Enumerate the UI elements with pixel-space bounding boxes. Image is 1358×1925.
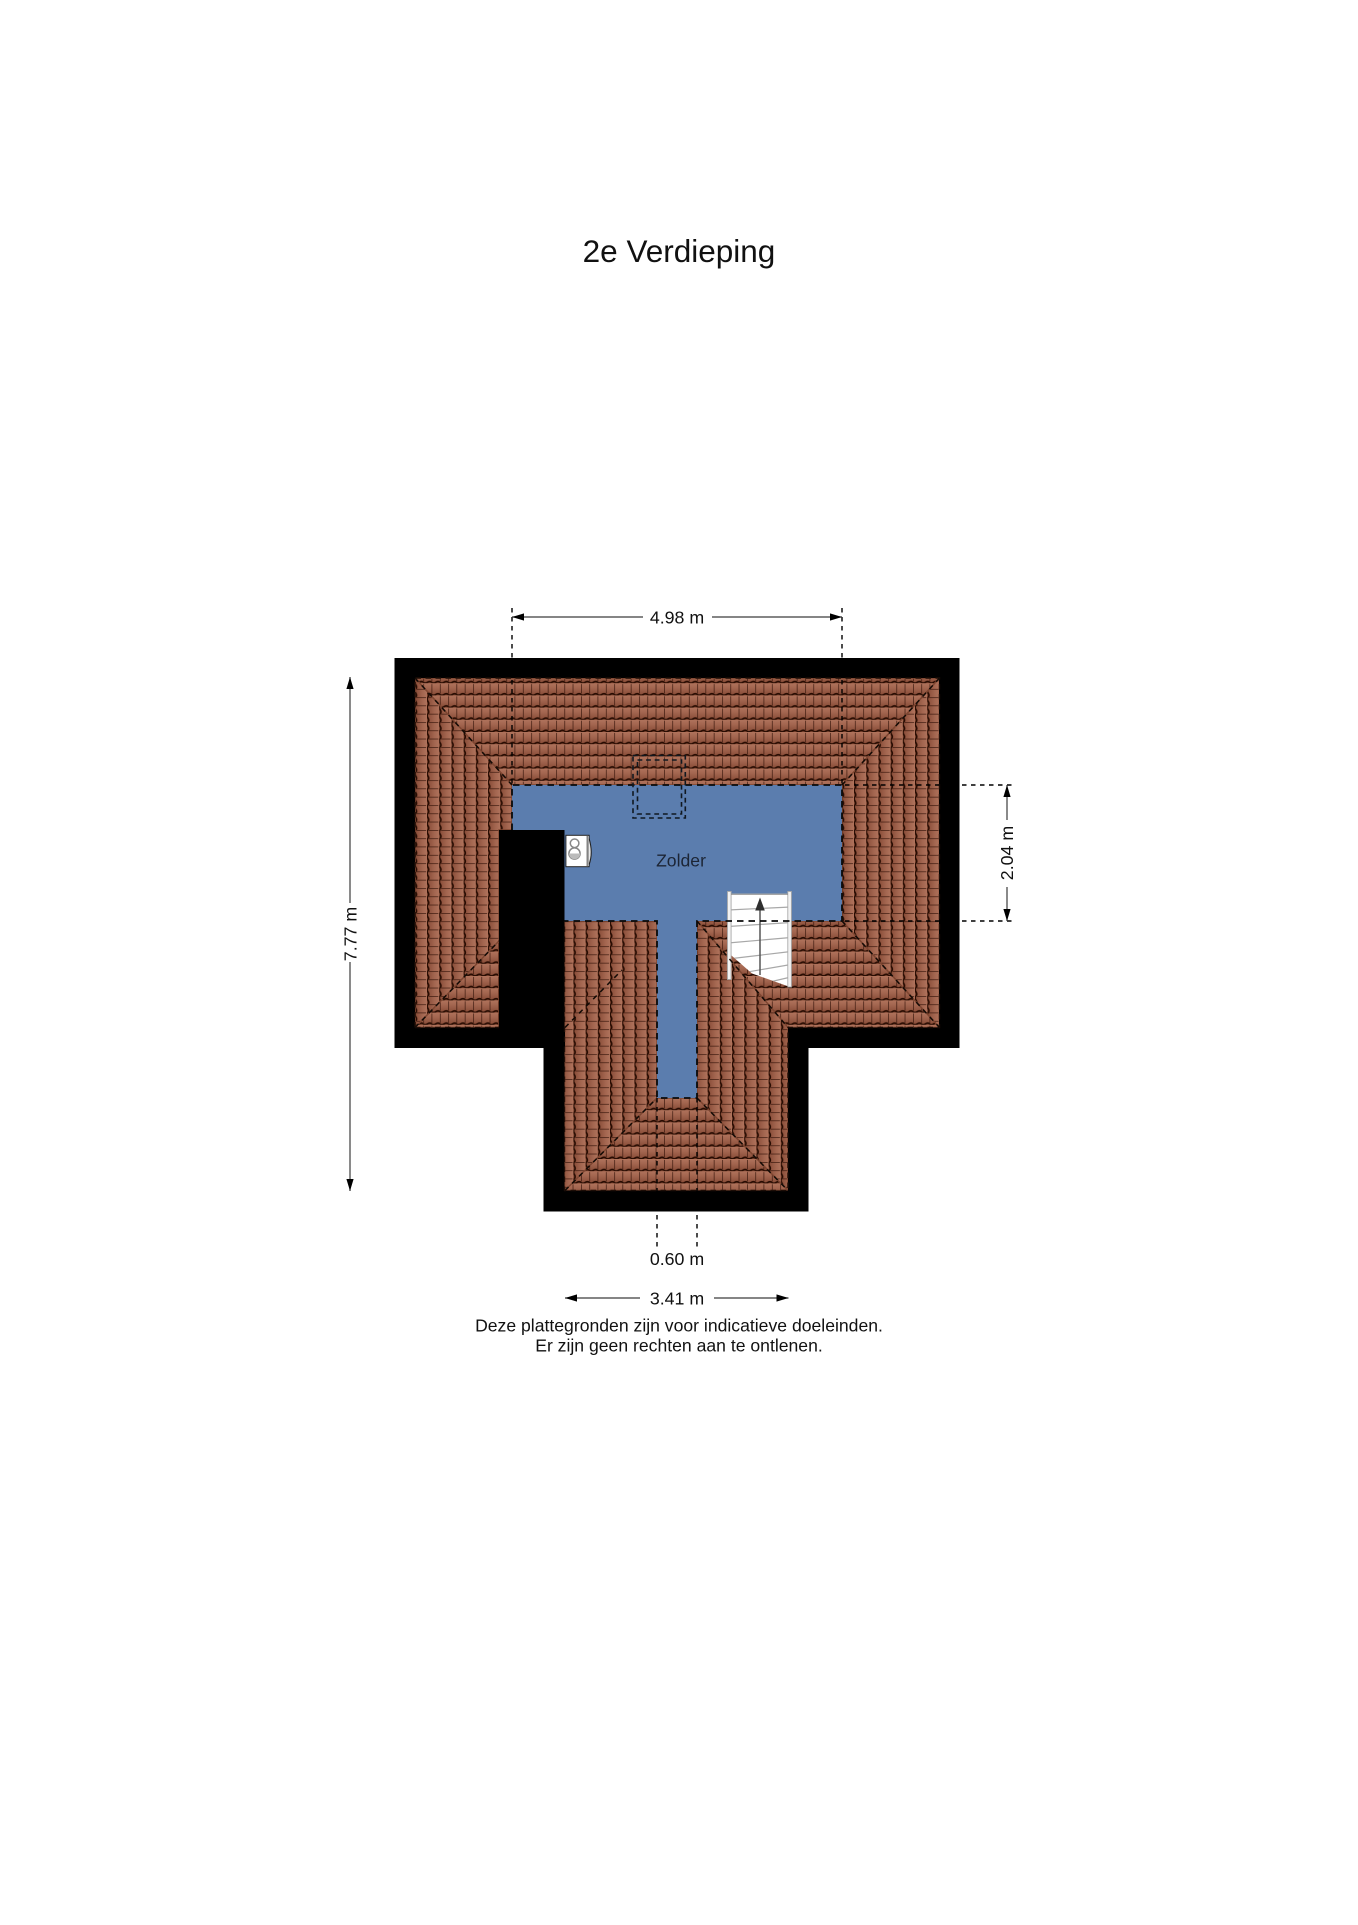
svg-text:0.60 m: 0.60 m bbox=[650, 1249, 704, 1269]
svg-text:Er zijn geen rechten aan te on: Er zijn geen rechten aan te ontlenen. bbox=[535, 1336, 823, 1356]
svg-text:3.41 m: 3.41 m bbox=[650, 1289, 704, 1309]
svg-text:2e Verdieping: 2e Verdieping bbox=[583, 233, 776, 269]
svg-text:4.98 m: 4.98 m bbox=[650, 608, 704, 628]
svg-text:7.77 m: 7.77 m bbox=[341, 907, 361, 961]
svg-text:Deze plattegronden zijn voor i: Deze plattegronden zijn voor indicatieve… bbox=[475, 1316, 883, 1336]
svg-text:Zolder: Zolder bbox=[656, 851, 706, 871]
svg-text:2.04 m: 2.04 m bbox=[997, 826, 1017, 880]
